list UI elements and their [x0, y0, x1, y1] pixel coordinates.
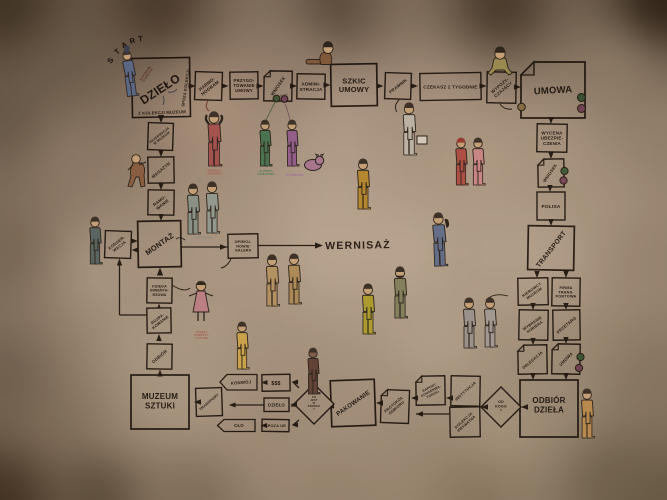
- svg-text:!?: !?: [196, 178, 201, 184]
- svg-text:NATORKA: NATORKA: [207, 172, 222, 176]
- svg-text:BRYGADA: BRYGADA: [196, 236, 213, 240]
- svg-text:KSIĘGOWA: KSIĘGOWA: [258, 172, 275, 176]
- svg-text:DYREKTOR: DYREKTOR: [286, 173, 303, 177]
- svg-text:KATURA: KATURA: [196, 336, 209, 340]
